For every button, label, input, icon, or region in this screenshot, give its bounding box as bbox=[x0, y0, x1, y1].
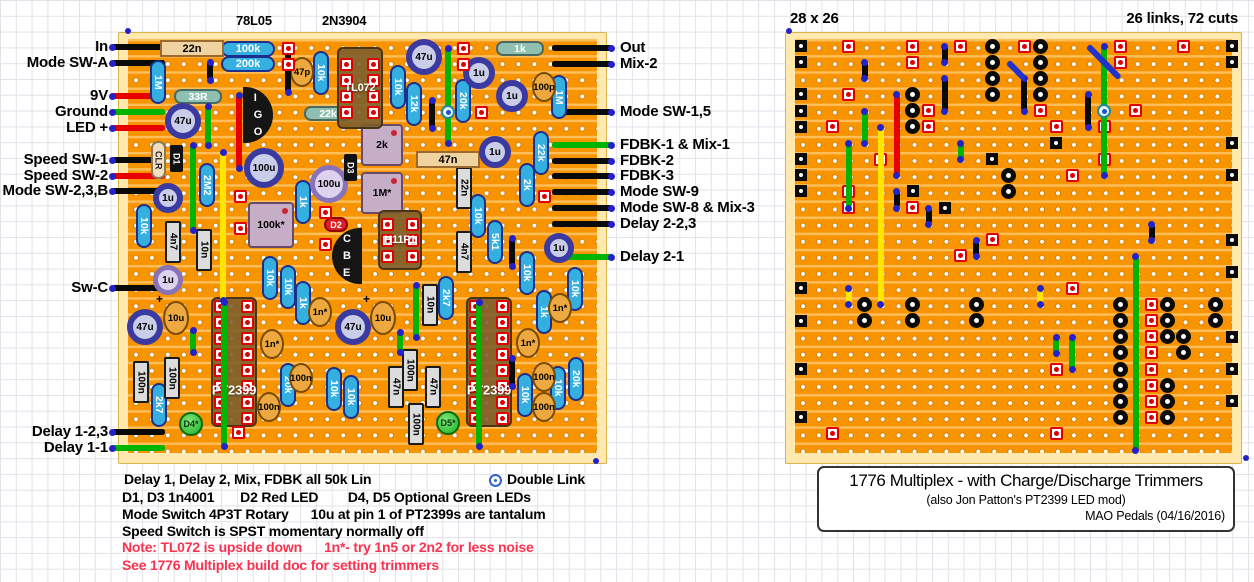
cut-square bbox=[795, 153, 807, 165]
resistor-CLR: CLR bbox=[151, 141, 166, 179]
pin-label: 9V bbox=[90, 87, 108, 104]
disc-cap-1n*: 1n* bbox=[548, 293, 572, 323]
cut-square bbox=[795, 88, 807, 100]
cut-square bbox=[795, 121, 807, 133]
resistor-10k: 10k bbox=[517, 373, 533, 417]
trimmer-2k: 2k bbox=[361, 124, 403, 166]
cut-circle bbox=[1033, 71, 1048, 86]
resistor-5k1: 5k1 bbox=[487, 220, 503, 264]
link-dot bbox=[925, 205, 932, 212]
solder-pad bbox=[319, 238, 332, 251]
pin-wire-dot bbox=[109, 60, 116, 67]
pin-wire-dot bbox=[608, 142, 615, 149]
film-cap-4n7: 4n7 bbox=[165, 221, 181, 263]
pin-wire bbox=[112, 429, 165, 435]
solder-pad bbox=[986, 233, 999, 246]
board-link-green bbox=[846, 143, 852, 208]
ic-pin-pad bbox=[367, 106, 380, 119]
film-cap-100n: 100n bbox=[408, 403, 424, 445]
link-dot bbox=[429, 97, 436, 104]
link-dot bbox=[509, 263, 516, 270]
film-cap-47n: 47n bbox=[416, 151, 480, 168]
resistor-22k: 22k bbox=[533, 131, 549, 175]
pin-wire-dot bbox=[109, 44, 116, 51]
resistor-10k: 10k bbox=[280, 265, 296, 309]
pin-wire-dot bbox=[608, 205, 615, 212]
resistor-1k: 1k bbox=[295, 180, 311, 224]
ic-pin-pad bbox=[496, 364, 509, 377]
cut-circle bbox=[985, 39, 1000, 54]
note-line-1: Delay 1, Delay 2, Mix, FDBK all 50k Lin bbox=[124, 471, 371, 487]
ic-pin-pad bbox=[406, 250, 419, 263]
cut-circle bbox=[1033, 87, 1048, 102]
cut-circle bbox=[1113, 394, 1128, 409]
link-dot bbox=[285, 89, 292, 96]
solder-pad bbox=[1145, 395, 1158, 408]
pin-wire-dot bbox=[109, 429, 116, 436]
pin-label: Ground bbox=[55, 103, 108, 120]
resistor-2k: 2k bbox=[519, 163, 535, 207]
pin-wire-dot bbox=[608, 61, 615, 68]
pin-label: Delay 2-2,3 bbox=[620, 215, 696, 232]
pin-wire-dot bbox=[109, 188, 116, 195]
plus-mark: + bbox=[363, 292, 370, 306]
cut-circle bbox=[1033, 55, 1048, 70]
tantalum-cap-10u: 10u bbox=[163, 301, 189, 335]
resistor-100k: 100k bbox=[221, 41, 275, 57]
board-link-black bbox=[1085, 94, 1091, 126]
pin-wire-dot bbox=[109, 445, 116, 452]
link-dot bbox=[1101, 172, 1108, 179]
pin-label: FDBK-3 bbox=[620, 167, 674, 184]
cut-circle bbox=[985, 71, 1000, 86]
ic-pin-pad bbox=[241, 412, 254, 425]
film-cap-4n7: 4n7 bbox=[456, 231, 472, 273]
resistor-10k: 10k bbox=[313, 51, 329, 95]
cut-square bbox=[1226, 137, 1238, 149]
solder-pad bbox=[1129, 104, 1142, 117]
pin-wire bbox=[112, 445, 165, 451]
double-link-marker bbox=[441, 105, 455, 119]
resistor-10k: 10k bbox=[519, 251, 535, 295]
pin-label: Mix-2 bbox=[620, 55, 657, 72]
pin-wire-dot bbox=[109, 125, 116, 132]
pin-wire-dot bbox=[109, 285, 116, 292]
solder-pad bbox=[282, 58, 295, 71]
film-cap-47n: 47n bbox=[425, 366, 441, 408]
cut-square bbox=[907, 185, 919, 197]
label-2n3904: 2N3904 bbox=[322, 13, 366, 28]
ic-pin-pad bbox=[496, 396, 509, 409]
ic-pin-pad bbox=[241, 364, 254, 377]
pin-wire bbox=[552, 61, 612, 67]
note-line-2: D1, D3 1n4001 D2 Red LED D4, D5 Optional… bbox=[122, 489, 531, 505]
disc-cap-100n: 100n bbox=[532, 362, 556, 392]
link-dot bbox=[509, 355, 516, 362]
pin-wire-dot bbox=[608, 221, 615, 228]
link-dot bbox=[925, 221, 932, 228]
solder-pad bbox=[1050, 363, 1063, 376]
link-dot bbox=[221, 443, 228, 450]
cut-circle bbox=[985, 87, 1000, 102]
disc-cap-1n*: 1n* bbox=[516, 328, 540, 358]
electrolytic-100u: 100u bbox=[310, 165, 348, 203]
solder-pad bbox=[538, 190, 551, 203]
disc-cap-100p: 100p bbox=[532, 72, 556, 102]
cut-square bbox=[1226, 56, 1238, 68]
ic-pin-pad bbox=[340, 58, 353, 71]
link-dot bbox=[1037, 285, 1044, 292]
ic-pin-pad bbox=[241, 348, 254, 361]
note-line-5: Note: TL072 is upside down 1n*- try 1n5 … bbox=[122, 539, 534, 555]
pin-wire-dot bbox=[109, 173, 116, 180]
solder-pad bbox=[1145, 411, 1158, 424]
link-dot bbox=[207, 77, 214, 84]
resistor-10k: 10k bbox=[136, 204, 152, 248]
diode-D1: D1 bbox=[170, 145, 183, 172]
solder-pad bbox=[842, 40, 855, 53]
ic-pin-pad bbox=[381, 218, 394, 231]
film-cap-100n: 100n bbox=[133, 361, 149, 403]
resistor-200k: 200k bbox=[221, 56, 275, 72]
cut-circle bbox=[1113, 313, 1128, 328]
pin-label: FDBK-1 & Mix-1 bbox=[620, 136, 730, 153]
ic-label-PT2399: PT2399 bbox=[212, 383, 256, 398]
cut-circle bbox=[969, 297, 984, 312]
solder-pad bbox=[954, 249, 967, 262]
diode-D3: D3 bbox=[344, 154, 357, 181]
board-link-green bbox=[445, 48, 451, 143]
film-cap-22n: 22n bbox=[160, 40, 224, 57]
solder-pad bbox=[1066, 282, 1079, 295]
cut-square bbox=[795, 363, 807, 375]
link-dot bbox=[221, 299, 228, 306]
electrolytic-47u: 47u bbox=[165, 103, 201, 139]
cut-square bbox=[939, 202, 951, 214]
cut-circle bbox=[1113, 410, 1128, 425]
resistor-10k: 10k bbox=[390, 65, 406, 109]
solder-pad bbox=[922, 104, 935, 117]
film-cap-100n: 100n bbox=[402, 349, 418, 391]
solder-pad bbox=[1145, 379, 1158, 392]
resistor-20k: 20k bbox=[568, 357, 584, 401]
electrolytic-47u: 47u bbox=[127, 309, 163, 345]
resistor-12k: 12k bbox=[406, 82, 422, 126]
solder-pad bbox=[1145, 314, 1158, 327]
link-dot bbox=[509, 383, 516, 390]
board-link-red bbox=[236, 95, 242, 168]
note-line-4: Speed Switch is SPST momentary normally … bbox=[122, 523, 424, 539]
solder-pad bbox=[232, 426, 245, 439]
resistor-10k: 10k bbox=[262, 256, 278, 300]
ic-pin-pad bbox=[406, 218, 419, 231]
ic-pin-pad bbox=[496, 316, 509, 329]
cut-square bbox=[1226, 40, 1238, 52]
pin-wire-dot bbox=[109, 93, 116, 100]
pin-label: LED + bbox=[66, 119, 108, 136]
board-corner-dot bbox=[125, 28, 131, 34]
link-dot bbox=[476, 443, 483, 450]
electrolytic-47u: 47u bbox=[335, 309, 371, 345]
link-dot bbox=[973, 237, 980, 244]
board-corner-dot bbox=[593, 458, 599, 464]
disc-cap-100n: 100n bbox=[257, 392, 281, 422]
link-dot bbox=[220, 149, 227, 156]
resistor-2M2: 2M2 bbox=[199, 163, 215, 207]
board-link-green bbox=[413, 285, 419, 337]
cut-square bbox=[1226, 234, 1238, 246]
disc-cap-1n*: 1n* bbox=[260, 329, 284, 359]
pin-wire bbox=[552, 205, 612, 211]
pin-label: Mode SW-9 bbox=[620, 183, 699, 200]
cut-circle bbox=[1001, 168, 1016, 183]
plus-mark: + bbox=[156, 292, 163, 306]
cut-square bbox=[1050, 137, 1062, 149]
solder-pad bbox=[1114, 56, 1127, 69]
solder-pad bbox=[922, 120, 935, 133]
cut-circle bbox=[1113, 362, 1128, 377]
link-dot bbox=[893, 205, 900, 212]
link-dot bbox=[190, 142, 197, 149]
solder-pad bbox=[234, 222, 247, 235]
trimmer-100k*: 100k* bbox=[248, 202, 294, 248]
cut-square bbox=[1226, 363, 1238, 375]
solder-pad bbox=[906, 40, 919, 53]
solder-pad bbox=[475, 106, 488, 119]
note-line-3: Mode Switch 4P3T Rotary 10u at pin 1 of … bbox=[122, 506, 545, 522]
board-link-black bbox=[509, 238, 515, 266]
link-dot bbox=[941, 43, 948, 50]
electrolytic-1u: 1u bbox=[153, 265, 183, 295]
link-dot bbox=[957, 156, 964, 163]
solder-pad bbox=[1034, 104, 1047, 117]
pin-wire-dot bbox=[608, 189, 615, 196]
cut-circle bbox=[969, 313, 984, 328]
pin-wire-dot bbox=[608, 45, 615, 52]
film-cap-10n: 10n bbox=[196, 229, 212, 271]
pin-wire-dot bbox=[109, 157, 116, 164]
link-dot bbox=[861, 108, 868, 115]
solder-pad bbox=[1177, 40, 1190, 53]
pin-wire bbox=[552, 158, 612, 164]
solder-pad bbox=[319, 206, 332, 219]
ic-pin-pad bbox=[496, 332, 509, 345]
link-dot bbox=[445, 45, 452, 52]
ic-pin-pad bbox=[340, 106, 353, 119]
board-link-black bbox=[1021, 78, 1027, 110]
link-dot bbox=[1069, 366, 1076, 373]
cut-square bbox=[795, 105, 807, 117]
ic-label-TL072: TL072 bbox=[345, 82, 376, 94]
note-line-6: See 1776 Multiplex build doc for setting… bbox=[122, 557, 439, 573]
solder-pad bbox=[826, 120, 839, 133]
pin-wire bbox=[552, 173, 612, 179]
solder-pad bbox=[457, 58, 470, 71]
board-link-yellow bbox=[878, 127, 884, 305]
link-dot bbox=[207, 59, 214, 66]
ic-label-PT2399: PT2399 bbox=[467, 383, 511, 398]
ic-label-H11F1: H11F1 bbox=[384, 234, 415, 246]
link-dot bbox=[973, 253, 980, 260]
pin-label: Mode SW-2,3,B bbox=[3, 182, 108, 199]
pin-wire bbox=[552, 45, 612, 51]
electrolytic-47u: 47u bbox=[406, 39, 442, 75]
led-D5*: D5* bbox=[436, 411, 460, 435]
ic-pin-pad bbox=[496, 300, 509, 313]
link-dot bbox=[429, 125, 436, 132]
electrolytic-1u: 1u bbox=[496, 80, 528, 112]
link-dot bbox=[1101, 43, 1108, 50]
electrolytic-1u: 1u bbox=[479, 136, 511, 168]
pin-label: Delay 2-1 bbox=[620, 248, 684, 265]
cut-circle bbox=[1113, 378, 1128, 393]
link-dot bbox=[1053, 350, 1060, 357]
board-link-black bbox=[509, 358, 515, 386]
cut-circle bbox=[1113, 345, 1128, 360]
cut-square bbox=[795, 315, 807, 327]
board-link-red bbox=[894, 94, 900, 175]
link-dot bbox=[445, 140, 452, 147]
caption-subtitle: (also Jon Patton's PT2399 LED mod) bbox=[819, 493, 1233, 507]
pin-label: In bbox=[95, 38, 108, 55]
cut-square bbox=[1226, 266, 1238, 278]
solder-pad bbox=[906, 56, 919, 69]
label-78l05: 78L05 bbox=[236, 13, 272, 28]
board-link-black bbox=[942, 78, 948, 110]
pin-wire-dot bbox=[608, 158, 615, 165]
board-size-label: 28 x 26 bbox=[790, 10, 839, 27]
cut-circle bbox=[905, 87, 920, 102]
link-dot bbox=[205, 103, 212, 110]
pin-wire bbox=[552, 189, 612, 195]
pin-label: Delay 1-2,3 bbox=[32, 423, 108, 440]
board-link-green bbox=[205, 106, 211, 145]
ic-pin-pad bbox=[241, 300, 254, 313]
board-link-green bbox=[221, 302, 227, 446]
ic-pin-pad bbox=[241, 396, 254, 409]
solder-pad bbox=[1145, 330, 1158, 343]
pin-label: Mode SW-A bbox=[27, 54, 108, 71]
caption-title: 1776 Multiplex - with Charge/Discharge T… bbox=[819, 471, 1233, 491]
disc-cap-1n*: 1n* bbox=[308, 297, 332, 327]
link-dot bbox=[190, 349, 197, 356]
link-dot bbox=[509, 235, 516, 242]
resistor-10k: 10k bbox=[470, 194, 486, 238]
solder-pad bbox=[234, 190, 247, 203]
cut-square bbox=[1226, 395, 1238, 407]
double-link-legend: Double Link bbox=[507, 471, 585, 487]
cut-square bbox=[795, 169, 807, 181]
disc-cap-100n: 100n bbox=[289, 363, 313, 393]
link-dot bbox=[1053, 334, 1060, 341]
board-link-green bbox=[1069, 337, 1075, 369]
resistor-2k7: 2k7 bbox=[438, 276, 454, 320]
board-link-yellow bbox=[220, 152, 226, 300]
solder-pad bbox=[826, 427, 839, 440]
pin-wire bbox=[112, 125, 165, 131]
pin-label: Mode SW-8 & Mix-3 bbox=[620, 199, 755, 216]
link-dot bbox=[236, 92, 243, 99]
link-dot bbox=[941, 108, 948, 115]
pin-wire bbox=[552, 221, 612, 227]
cut-square bbox=[795, 40, 807, 52]
link-dot bbox=[957, 140, 964, 147]
resistor-33R: 33R bbox=[174, 89, 222, 104]
ic-pin-pad bbox=[496, 412, 509, 425]
cut-circle bbox=[1113, 297, 1128, 312]
cut-square bbox=[1226, 331, 1238, 343]
solder-pad bbox=[842, 88, 855, 101]
link-dot bbox=[1021, 108, 1028, 115]
link-dot bbox=[397, 349, 404, 356]
link-dot bbox=[190, 227, 197, 234]
cut-square bbox=[795, 56, 807, 68]
pin-wire-dot bbox=[608, 254, 615, 261]
pin-wire-dot bbox=[608, 173, 615, 180]
link-dot bbox=[1085, 124, 1092, 131]
solder-pad bbox=[1066, 169, 1079, 182]
pin-label: Sw-C bbox=[71, 279, 108, 296]
double-link-icon bbox=[489, 474, 502, 487]
cut-circle bbox=[1113, 329, 1128, 344]
cut-circle bbox=[1160, 378, 1175, 393]
board-link-green bbox=[476, 302, 482, 446]
film-cap-100n: 100n bbox=[164, 357, 180, 399]
link-dot bbox=[205, 142, 212, 149]
solder-pad bbox=[1050, 120, 1063, 133]
pin-wire bbox=[112, 44, 165, 50]
solder-pad bbox=[1145, 346, 1158, 359]
resistor-1M: 1M bbox=[150, 60, 166, 104]
pin-wire-dot bbox=[608, 109, 615, 116]
pin-label: Mode SW-1,5 bbox=[620, 103, 711, 120]
film-cap-10n: 10n bbox=[422, 284, 438, 326]
pin-wire bbox=[552, 142, 612, 148]
disc-cap-100n: 100n bbox=[532, 392, 556, 422]
solder-pad bbox=[1018, 40, 1031, 53]
resistor-1k: 1k bbox=[496, 41, 544, 56]
pin-label: Speed SW-1 bbox=[24, 151, 108, 168]
board-corner-dot bbox=[1243, 455, 1249, 461]
link-dot bbox=[190, 327, 197, 334]
cut-circle bbox=[1033, 39, 1048, 54]
double-link-marker bbox=[1097, 104, 1111, 118]
cut-square bbox=[795, 185, 807, 197]
board-link-green bbox=[1133, 256, 1139, 450]
pin-wire-dot bbox=[109, 109, 116, 116]
cut-circle bbox=[985, 55, 1000, 70]
cut-square bbox=[795, 411, 807, 423]
electrolytic-1u: 1u bbox=[544, 233, 574, 263]
cut-circle bbox=[1208, 297, 1223, 312]
ic-pin-pad bbox=[241, 316, 254, 329]
solder-pad bbox=[1050, 427, 1063, 440]
cut-circle bbox=[905, 297, 920, 312]
board-corner-dot bbox=[786, 28, 792, 34]
solder-pad bbox=[906, 201, 919, 214]
resistor-10k: 10k bbox=[326, 367, 342, 411]
solder-pad bbox=[954, 40, 967, 53]
tantalum-cap-10u: 10u bbox=[370, 301, 396, 335]
solder-pad bbox=[1145, 363, 1158, 376]
cut-circle bbox=[1001, 184, 1016, 199]
layout-canvas: 78L05 2N3904 28 x 26 26 links, 72 cuts D… bbox=[0, 0, 1254, 582]
led-D4*: D4* bbox=[179, 412, 203, 436]
resistor-10k: 10k bbox=[343, 375, 359, 419]
electrolytic-1u: 1u bbox=[153, 183, 183, 213]
link-dot bbox=[397, 329, 404, 336]
pin-label: Delay 1-1 bbox=[44, 439, 108, 456]
